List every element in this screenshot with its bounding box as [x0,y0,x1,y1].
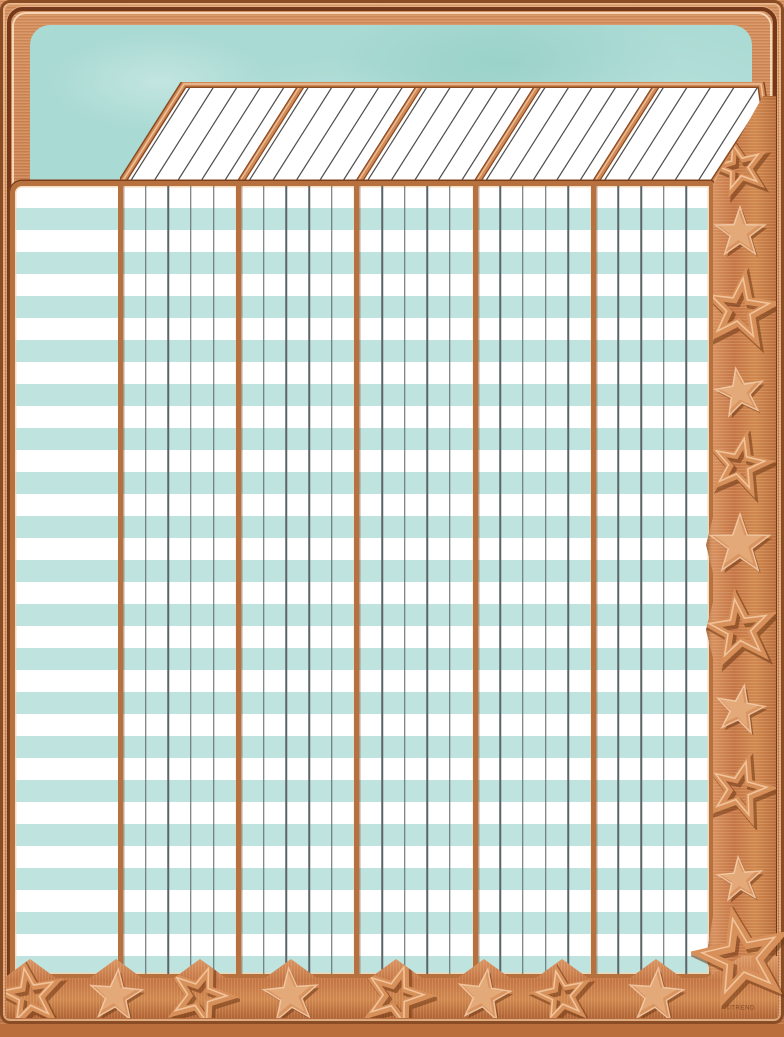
subcolumn-line [286,186,288,974]
grid-section [236,186,354,974]
subcolumn-line [263,186,265,974]
corner-star-outline-icon [691,907,784,1009]
subcolumn-line [427,186,429,974]
subcolumn-line [618,186,620,974]
subcolumn-line [545,186,547,974]
incentive-chart-poster: ©TREND [0,0,784,1024]
subcolumn-line [145,186,147,974]
subcolumn-line [308,186,310,974]
grid-sheet [10,181,714,979]
name-column [15,186,118,974]
star-outline-icon [702,427,778,503]
subcolumn-line [190,186,192,974]
subcolumn-line [663,186,665,974]
bottom-star-band [6,956,778,1018]
grid-section [118,186,236,974]
subcolumn-line [213,186,215,974]
slanted-header-band [120,82,772,188]
star-filled-icon [703,356,777,430]
subcolumn-line [640,186,642,974]
grid-section [354,186,472,974]
subcolumn-line [686,186,688,974]
star-filled-icon [703,673,777,747]
subcolumn-line [381,186,383,974]
subcolumn-line [168,186,170,974]
right-star-band [706,96,776,980]
grid-section [591,186,709,974]
grid-section [473,186,591,974]
subcolumn-line [404,186,406,974]
star-filled-icon [702,195,778,271]
subcolumn-line [449,186,451,974]
subcolumn-line [567,186,569,974]
star-filled-icon [705,845,775,915]
grid-columns [15,186,709,974]
subcolumn-line [500,186,502,974]
subcolumn-line [331,186,333,974]
subcolumn-line [522,186,524,974]
copyright-text: ©TREND [726,1005,755,1011]
